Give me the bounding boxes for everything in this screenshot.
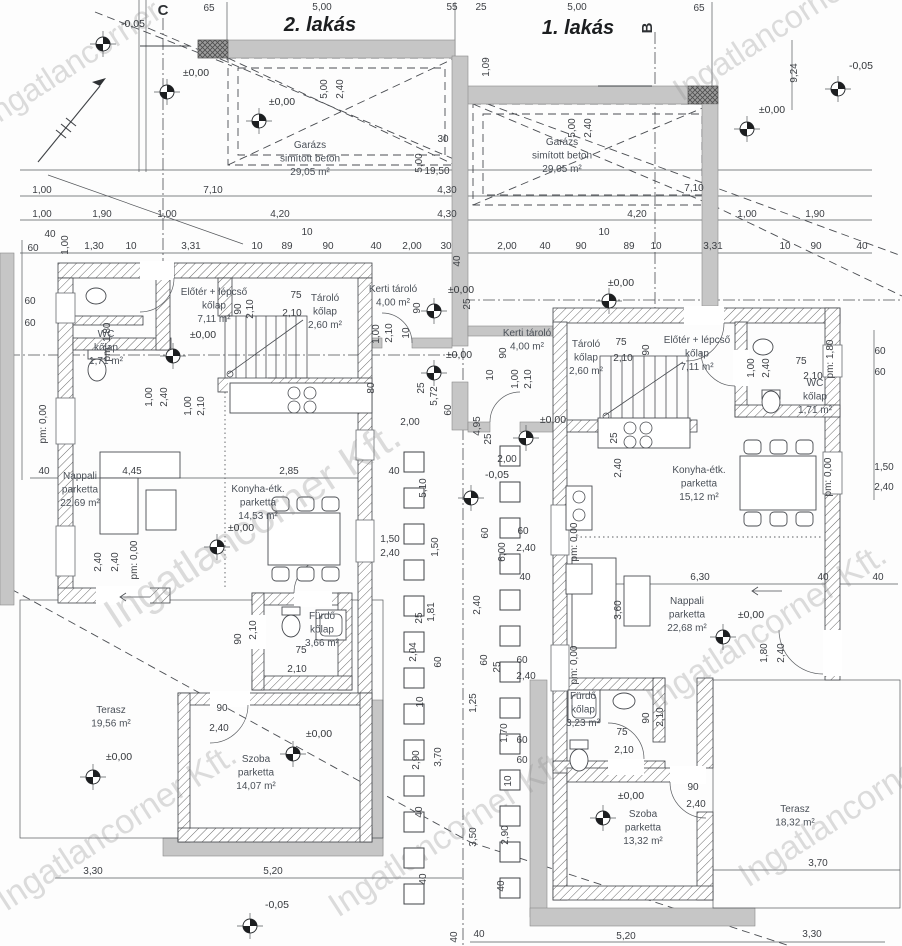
dimension-label: 1,00	[157, 209, 177, 220]
dimension-label: 10	[415, 696, 426, 708]
dimension-label: 2,40	[209, 723, 229, 734]
dimension-label: 75	[615, 337, 627, 348]
dimension-label: 2,10	[245, 299, 256, 319]
dimension-label: 40	[414, 806, 425, 818]
dimension-label: 2,10	[613, 353, 633, 364]
floor-plan-drawing: IngatlancornerIngatlancorner Kft.Ingatla…	[0, 0, 902, 946]
dimension-label: 25	[483, 433, 494, 445]
level-label: ±0,00	[106, 751, 132, 763]
dimension-label: 75	[616, 727, 628, 738]
dimension-label: 2,40	[472, 595, 483, 615]
dimension-label: 90	[412, 302, 423, 314]
dimension-label: 6,00	[497, 542, 508, 562]
dimension-label: 75	[795, 356, 807, 367]
room-label: Terasz	[96, 705, 125, 716]
dimension-label: 40	[388, 466, 400, 477]
dimension-label: 60	[24, 318, 36, 329]
room-label: Garázs	[546, 137, 578, 148]
dimension-label: 1,00	[746, 358, 757, 378]
dimension-label: 1,90	[92, 209, 112, 220]
dimension-label: 1,00	[183, 396, 194, 416]
dimension-label: 1,30	[84, 241, 104, 252]
dimension-label: 25	[492, 661, 503, 673]
unit-title: 1. lakás	[542, 17, 614, 39]
dimension-label: 7,10	[203, 185, 223, 196]
unit-title: 2. lakás	[283, 14, 356, 36]
dimension-label: 25	[416, 382, 427, 394]
dimension-label: 2,04	[408, 642, 419, 662]
dimension-label: 2,40	[583, 118, 594, 138]
dimension-label: 2,10	[196, 396, 207, 416]
dimension-label: 10	[650, 241, 662, 252]
dimension-label: 4,95	[472, 416, 483, 436]
dimension-label: 65	[203, 3, 215, 14]
level-label: ±0,00	[608, 277, 634, 289]
dimension-label: 3,60	[613, 600, 624, 620]
dimension-label: 5,00	[567, 118, 578, 138]
dimension-label: 60	[433, 656, 444, 668]
room-label: kőlap	[313, 307, 337, 318]
room-label: simított beton	[532, 151, 592, 162]
dimension-label: 1,50	[874, 462, 894, 473]
room-label: kőlap	[310, 625, 334, 636]
column-post	[404, 776, 424, 796]
dimension-label: 1,00	[60, 235, 71, 255]
level-label: -0,05	[485, 469, 509, 481]
dimension-label: 1,80	[759, 643, 770, 663]
dimension-label: 2,40	[761, 358, 772, 378]
dimension-label: 2,10	[655, 707, 666, 727]
dimension-label: 4,20	[270, 209, 290, 220]
room-label: 1,71 m²	[798, 405, 833, 416]
column-post	[404, 884, 424, 904]
room-label: 13,32 m²	[623, 836, 663, 847]
dimension-label: 2,40	[110, 552, 121, 572]
dimension-label: 25	[475, 2, 487, 13]
dimension-label: 2,40	[159, 387, 170, 407]
room-label: Előtér + lépcső	[664, 335, 731, 346]
column-post	[500, 626, 520, 646]
dimension-label: 2,10	[384, 323, 395, 343]
level-label: -0,05	[121, 18, 145, 30]
room-label: Nappali	[670, 596, 704, 607]
level-label: ±0,00	[448, 284, 474, 296]
dimension-label: pm: 1,80	[825, 339, 836, 378]
room-label: WC	[98, 329, 115, 340]
dimension-label: 90	[687, 782, 699, 793]
column-post	[404, 524, 424, 544]
room-label: parketta	[62, 485, 99, 496]
dimension-label: 25	[462, 298, 473, 310]
dimension-label: 40	[817, 572, 829, 583]
level-label: ±0,00	[228, 522, 254, 534]
dimension-label: 2,10	[248, 620, 259, 640]
dimension-label: 2,10	[282, 308, 302, 319]
dimension-label: 90	[641, 712, 652, 724]
dimension-label: 2,40	[516, 543, 536, 554]
room-label: Szoba	[242, 754, 271, 765]
room-label: 4,00 m²	[510, 342, 545, 353]
dimension-label: 1,00	[737, 209, 757, 220]
level-label: ±0,00	[446, 349, 472, 361]
dimension-label: 10	[503, 775, 514, 787]
room-label: kőlap	[803, 392, 827, 403]
dimension-label: 3,31	[181, 241, 201, 252]
dimension-label: 3,70	[433, 747, 444, 767]
dimension-label: 2,40	[874, 482, 894, 493]
dimension-label: 1,25	[468, 693, 479, 713]
room-label: 14,53 m²	[238, 511, 278, 522]
room-label: kőlap	[574, 353, 598, 364]
room-label: 4,00 m²	[376, 298, 411, 309]
dimension-label: pm: 0,00	[38, 404, 49, 443]
dimension-label: 1,00	[32, 185, 52, 196]
room-label: Terasz	[780, 804, 809, 815]
dimension-label: 4,20	[627, 209, 647, 220]
room-label: kőlap	[202, 301, 226, 312]
room-label: Tároló	[311, 293, 340, 304]
section-marker: C	[158, 2, 169, 19]
dimension-label: 1,00	[32, 209, 52, 220]
dimension-label: pm: 0,00	[569, 645, 580, 684]
room-label: Garázs	[294, 140, 326, 151]
room-label: Konyha-étk.	[231, 484, 284, 495]
dimension-label: 90	[233, 633, 244, 645]
dimension-label: 10	[779, 241, 791, 252]
room-label: 7,11 m²	[680, 362, 714, 373]
room-label: kőlap	[571, 705, 595, 716]
dimension-label: 1,00	[144, 387, 155, 407]
level-label: -0,05	[265, 899, 289, 911]
dimension-label: 60	[24, 296, 36, 307]
dimension-label: 5,00	[319, 79, 330, 99]
dimension-label: 2,40	[516, 671, 536, 682]
dimension-label: 2,90	[500, 825, 511, 845]
dimension-label: 60	[480, 527, 491, 539]
room-label: Konyha-étk.	[672, 465, 725, 476]
dimension-label: 2,00	[497, 241, 517, 252]
dimension-label: 60	[516, 755, 528, 766]
dimension-label: 1,00	[510, 369, 521, 389]
room-label: parketta	[669, 610, 706, 621]
dimension-label: 65	[693, 3, 705, 14]
dimension-label: 90	[233, 303, 244, 315]
dimension-label: 4,45	[122, 466, 142, 477]
dimension-label: 6,30	[690, 572, 710, 583]
dimension-label: 60	[516, 735, 528, 746]
dimension-label: 60	[874, 367, 886, 378]
dimension-label: 80	[366, 382, 377, 394]
room-label: 22,68 m²	[667, 623, 707, 634]
dimension-label: 40	[449, 931, 460, 943]
dimension-label: 1,00	[371, 324, 382, 344]
dimension-label: 2,40	[776, 643, 787, 663]
dimension-label: 2,85	[279, 466, 299, 477]
dimension-label: 1,50	[380, 534, 400, 545]
dimension-label: 40	[44, 229, 56, 240]
room-label: Kerti tároló	[503, 328, 552, 339]
dimension-label: 40	[872, 572, 884, 583]
room-label: kőlap	[685, 349, 709, 360]
column-post	[404, 560, 424, 580]
dimension-label: 60	[516, 655, 528, 666]
dimension-label: 40	[539, 241, 551, 252]
dimension-label: 40	[38, 466, 50, 477]
room-label: Szoba	[629, 809, 658, 820]
dimension-label: 2,10	[287, 664, 307, 675]
room-label: kőlap	[94, 343, 118, 354]
level-label: ±0,00	[183, 67, 209, 79]
level-label: ±0,00	[190, 329, 216, 341]
dimension-label: 40	[496, 880, 507, 892]
dimension-label: 60	[517, 526, 529, 537]
column-post	[500, 698, 520, 718]
dimension-label: 60	[479, 654, 490, 666]
column-post	[404, 452, 424, 472]
dimension-label: 4,30	[437, 209, 457, 220]
column-post	[404, 848, 424, 868]
room-label: parketta	[240, 498, 277, 509]
dimension-label: 2,10	[614, 745, 634, 756]
room-label: Előtér + lépcső	[181, 287, 248, 298]
dimension-label: 1,50	[430, 537, 441, 557]
dimension-label: pm: 0,00	[823, 457, 834, 496]
dimension-label: 30	[437, 134, 449, 145]
room-label: simított beton	[280, 154, 340, 165]
dimension-label: 5,20	[263, 866, 283, 877]
room-label: parketta	[238, 768, 275, 779]
column-post	[500, 590, 520, 610]
floor-plan-page: IngatlancornerIngatlancorner Kft.Ingatla…	[0, 0, 902, 946]
room-label: WC	[807, 378, 824, 389]
dimension-label: 60	[874, 346, 886, 357]
room-label: 2,60 m²	[308, 320, 343, 331]
dimension-label: 1,90	[805, 209, 825, 220]
room-label: 18,32 m²	[775, 818, 815, 829]
room-label: 19,56 m²	[91, 719, 131, 730]
level-label: ±0,00	[269, 96, 295, 108]
dimension-label: 2,10	[523, 369, 534, 389]
column-post	[500, 482, 520, 502]
dimension-label: 60	[27, 243, 39, 254]
dimension-label: 5,20	[616, 931, 636, 942]
dimension-label: 1,81	[426, 602, 437, 622]
dimension-label: 3,30	[802, 929, 822, 940]
dimension-label: 5,00	[312, 2, 332, 13]
room-label: parketta	[625, 823, 662, 834]
level-label: ±0,00	[618, 790, 644, 802]
dimension-label: 40	[856, 241, 868, 252]
dimension-label: 2,00	[402, 241, 422, 252]
level-label: ±0,00	[540, 414, 566, 426]
level-label: ±0,00	[759, 104, 785, 116]
dimension-label: 2,40	[93, 552, 104, 572]
dimension-label: 10	[301, 227, 313, 238]
dimension-label: 90	[322, 241, 334, 252]
dimension-label: 89	[281, 241, 293, 252]
room-label: 22,69 m²	[60, 498, 100, 509]
dimension-label: 40	[519, 572, 531, 583]
dimension-label: 1,70	[499, 723, 510, 743]
dimension-label: 2,00	[497, 454, 517, 465]
room-label: Fürdő	[309, 611, 336, 622]
room-label: 3,23 m²	[566, 718, 601, 729]
level-label: ±0,00	[738, 609, 764, 621]
room-label: Fürdő	[570, 691, 597, 702]
room-label: Tároló	[572, 339, 601, 350]
dimension-label: 40	[370, 241, 382, 252]
dimension-label: 2,00	[400, 417, 420, 428]
dimension-label: 4,30	[437, 185, 457, 196]
dimension-label: 10	[125, 241, 137, 252]
dimension-label: 3,30	[83, 866, 103, 877]
dimension-label: 9,24	[789, 63, 800, 83]
room-label: 29,05 m²	[542, 164, 582, 175]
dimension-label: 10	[401, 327, 412, 339]
dimension-label: 5,00	[567, 2, 587, 13]
room-label: 1,71 m²	[89, 356, 124, 367]
dimension-label: 90	[498, 347, 509, 359]
dimension-label: 7,10	[684, 183, 704, 194]
room-label: 7,11 m²	[197, 314, 231, 325]
dimension-label: 2,90	[411, 750, 422, 770]
dimension-label: 2,40	[335, 79, 346, 99]
dimension-label: 2,40	[686, 799, 706, 810]
level-label: -0,05	[849, 60, 873, 72]
dimension-label: 5,72	[429, 386, 440, 406]
dimension-label: pm: 0,00	[129, 540, 140, 579]
section-marker: B	[639, 22, 656, 33]
room-label: Kerti tároló	[369, 284, 418, 295]
dimension-label: 25	[414, 612, 425, 624]
room-label: Nappali	[63, 471, 97, 482]
dimension-label: 90	[575, 241, 587, 252]
dimension-label: 30	[440, 241, 452, 252]
dimension-label: 75	[290, 290, 302, 301]
dimension-label: 3,50	[468, 827, 479, 847]
dimension-label: 90	[641, 344, 652, 356]
dimension-label: 40	[452, 255, 463, 267]
column-post	[404, 668, 424, 688]
dimension-label: 19,50	[424, 166, 449, 177]
dimension-label: 90	[810, 241, 822, 252]
dimension-label: pm: 0,00	[569, 522, 580, 561]
dimension-label: 40	[418, 873, 429, 885]
column-post	[500, 806, 520, 826]
dimension-label: 3,70	[808, 858, 828, 869]
dimension-label: 89	[623, 241, 635, 252]
room-label: parketta	[681, 479, 718, 490]
room-label: 2,60 m²	[569, 366, 604, 377]
dimension-label: 60	[443, 404, 454, 416]
dimension-label: 55	[446, 2, 458, 13]
dimension-label: 10	[485, 369, 496, 381]
dimension-label: 1,09	[481, 57, 492, 77]
dimension-label: 2,40	[380, 548, 400, 559]
room-label: 15,12 m²	[679, 492, 719, 503]
room-label: 3,66 m²	[305, 638, 340, 649]
dimension-label: 5,00	[414, 153, 425, 173]
dimension-label: 25	[609, 432, 620, 444]
dimension-label: 10	[251, 241, 263, 252]
room-label: 14,07 m²	[236, 781, 276, 792]
dimension-label: 90	[216, 703, 228, 714]
dimension-label: 3,31	[703, 241, 723, 252]
dimension-label: 2,40	[613, 458, 624, 478]
room-label: 29,05 m²	[290, 167, 330, 178]
dimension-label: 40	[473, 929, 485, 940]
dimension-label: 5,10	[418, 478, 429, 498]
level-label: ±0,00	[306, 728, 332, 740]
dimension-label: 10	[598, 227, 610, 238]
